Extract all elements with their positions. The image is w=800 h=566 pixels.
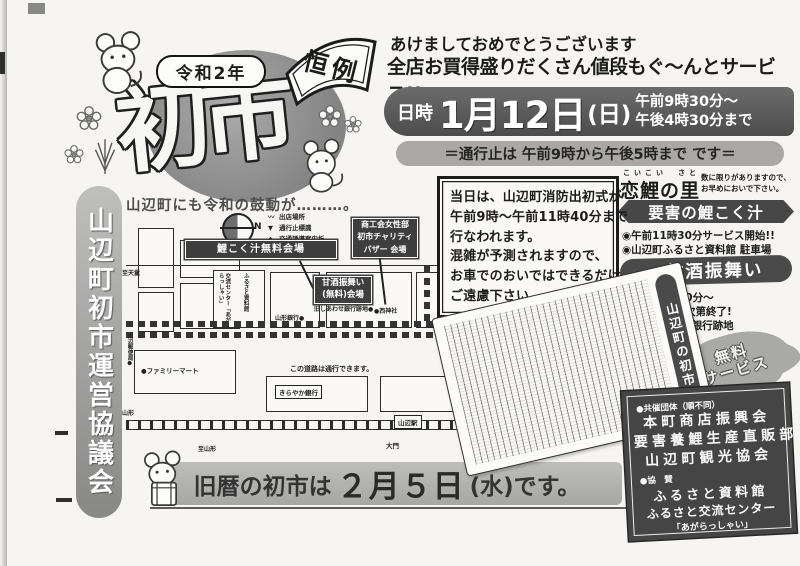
map-label-daimon: 大門 bbox=[386, 440, 399, 450]
event-weekday: (日) bbox=[587, 95, 631, 129]
sponsors-box: ●共催団体（順不同） 本町商店振興会 要害養鯉生産直販部 山辺町観光協会 ●協 … bbox=[626, 388, 791, 536]
venue-callout-bazaar: 商工会女性部 初市チャリティ バザー 会場 bbox=[352, 218, 418, 258]
banner-underline bbox=[150, 507, 628, 509]
time-end: 午後4時30分まで bbox=[635, 113, 752, 129]
header-caption: 山辺町にも令和の鼓動が………。 bbox=[126, 194, 359, 215]
organizer-name: 山辺町初市運営協議会 bbox=[81, 207, 118, 497]
lunar-prefix: 旧暦の初市は bbox=[194, 467, 332, 501]
map-label-passable-road: この道路は通行できます。 bbox=[290, 364, 373, 374]
flyer-page: 令和2年 恒例 初市 山辺町にも令和の鼓動が………。 あけましておめでとうござい… bbox=[0, 0, 800, 566]
datetime-label: 日時 bbox=[397, 99, 433, 125]
map-label-familymart: ●ファミリーマート bbox=[141, 365, 199, 375]
koikoku-ribbon: 要害の鯉こく汁 bbox=[618, 200, 794, 223]
market-stalls-column bbox=[424, 266, 430, 321]
compass-north-label: N bbox=[254, 222, 262, 232]
plum-blossom-icon bbox=[64, 145, 84, 165]
map-label-to-tendo: 至天童 bbox=[122, 268, 140, 277]
time-start: 午前9時30分〜 bbox=[635, 94, 738, 110]
map-label-to-yamagata-street: 至山形 bbox=[198, 444, 216, 453]
venue-callout-koikoku: 鯉こく汁無料会場 bbox=[185, 240, 337, 259]
koikoku-item: ◉午前11時30分サービス開始!! bbox=[622, 228, 775, 243]
map-block: 交流センター「あがらっしゃい」 ふるさと資料館 bbox=[213, 270, 265, 328]
map-label-kirayaka-bank: きらやか銀行 bbox=[275, 385, 322, 399]
road-closure-banner: ＝通行止は 午前9時から午後5時まで です＝ bbox=[396, 141, 784, 166]
legend-item: ▼通行止標識 bbox=[268, 223, 325, 234]
map-label-shiawase-site: 旧しあわせ銀行跡地● bbox=[314, 304, 373, 313]
plum-blossom-icon bbox=[344, 116, 362, 134]
scan-artifact bbox=[0, 52, 5, 74]
mouse-illustration bbox=[88, 30, 146, 98]
map-block: ●ファミリーマート bbox=[134, 350, 236, 394]
year-badge: 令和2年 bbox=[156, 55, 266, 88]
koikoku-item: ◉山辺町ふるさと資料館 駐車場 bbox=[622, 242, 771, 257]
venue-callout-amazake: 甘酒振舞い (無料)会場 bbox=[314, 276, 372, 304]
plum-blossom-icon bbox=[318, 105, 342, 129]
map-label-kouryu-center: 交流センター「あがらっしゃい」 bbox=[217, 273, 230, 325]
lunar-date-banner: 旧暦の初市は ２月５日 (水)です。 bbox=[152, 462, 622, 505]
map-block: 山形銀行● bbox=[270, 272, 320, 328]
plum-blossom-icon bbox=[76, 106, 102, 132]
map-block bbox=[138, 228, 174, 288]
scan-edge-shadow bbox=[0, 0, 7, 566]
event-times: 午前9時30分〜 午後4時30分まで bbox=[635, 93, 752, 131]
koi-note: 数に限りがありますので、 お早めにおいで下さい。 bbox=[701, 172, 791, 195]
lunar-date: ２月５日 bbox=[337, 461, 465, 506]
mouse-illustration bbox=[138, 448, 190, 512]
map-label-post-office: 山辺郵便局● bbox=[126, 333, 133, 379]
pine-needles-icon bbox=[92, 130, 118, 178]
mouse-illustration bbox=[296, 136, 350, 196]
year-label: 令和2年 bbox=[176, 59, 247, 84]
scan-artifact bbox=[56, 498, 72, 502]
organizer-bar: 山辺町初市運営協議会 bbox=[76, 186, 122, 518]
map-block: きらやか銀行 bbox=[266, 376, 368, 412]
event-date: 1月12日 bbox=[439, 85, 585, 139]
koi-no-sato-title: 恋鯉の里 bbox=[620, 176, 700, 203]
scan-artifact bbox=[28, 3, 45, 14]
map-label-furusato-museum: ふるさと資料館 bbox=[242, 273, 249, 325]
datetime-banner: 日時 1月12日 (日) 午前9時30分〜 午後4時30分まで bbox=[384, 87, 794, 136]
map-label-nishi-shrine: ●西神社 bbox=[374, 306, 397, 315]
map-label-station: 山辺駅 bbox=[394, 415, 422, 429]
scan-artifact bbox=[55, 431, 68, 435]
